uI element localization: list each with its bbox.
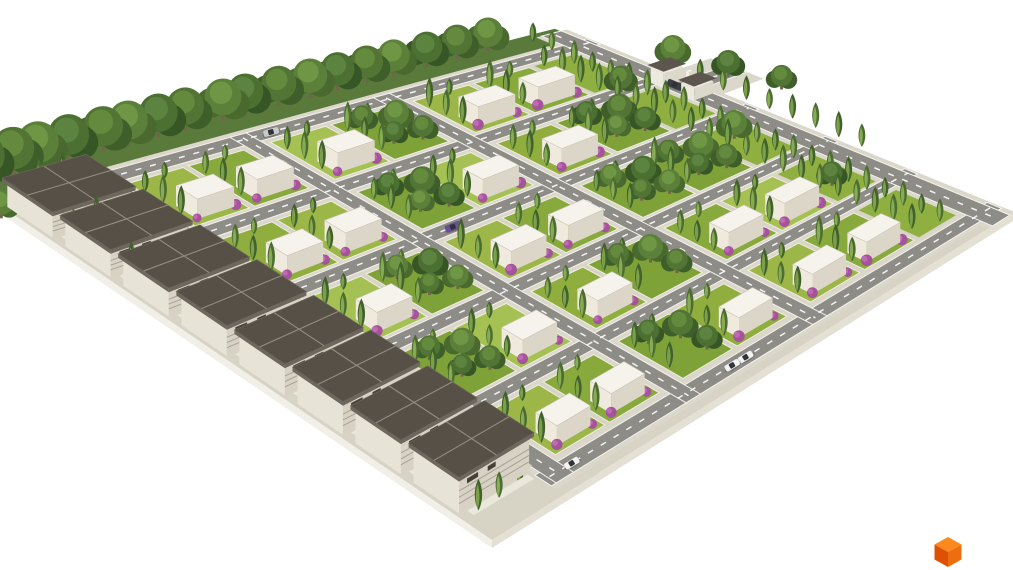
cypress-tree [789,94,796,119]
flowering-shrub [252,193,261,202]
flowering-shrub [563,240,572,249]
flowering-shrub [861,254,873,266]
cypress-tree [835,111,842,138]
flowering-shrub [517,353,528,364]
site-plan-3d-render [0,0,1013,570]
flowering-shrub [472,119,483,130]
render-stage [0,0,1013,570]
perimeter-tree [766,65,797,90]
flowering-shrub [478,193,488,203]
cypress-tree [812,102,819,128]
flowering-shrub [557,162,567,172]
cypress-tree [858,123,865,146]
flowering-shrub [779,216,790,227]
flowering-shrub [593,315,602,324]
flowering-shrub [606,407,617,418]
flowering-shrub [807,287,818,298]
cypress-tree [766,88,773,109]
flowering-shrub [551,439,562,450]
flowering-shrub [532,99,543,110]
flowering-shrub [733,330,745,342]
perimeter-tree [711,50,745,77]
flowering-shrub [724,246,734,256]
flowering-shrub [333,167,343,177]
orange-cube-logo [935,537,962,567]
flowering-shrub [341,247,351,257]
flowering-shrub [193,213,202,222]
flowering-shrub [505,264,517,276]
